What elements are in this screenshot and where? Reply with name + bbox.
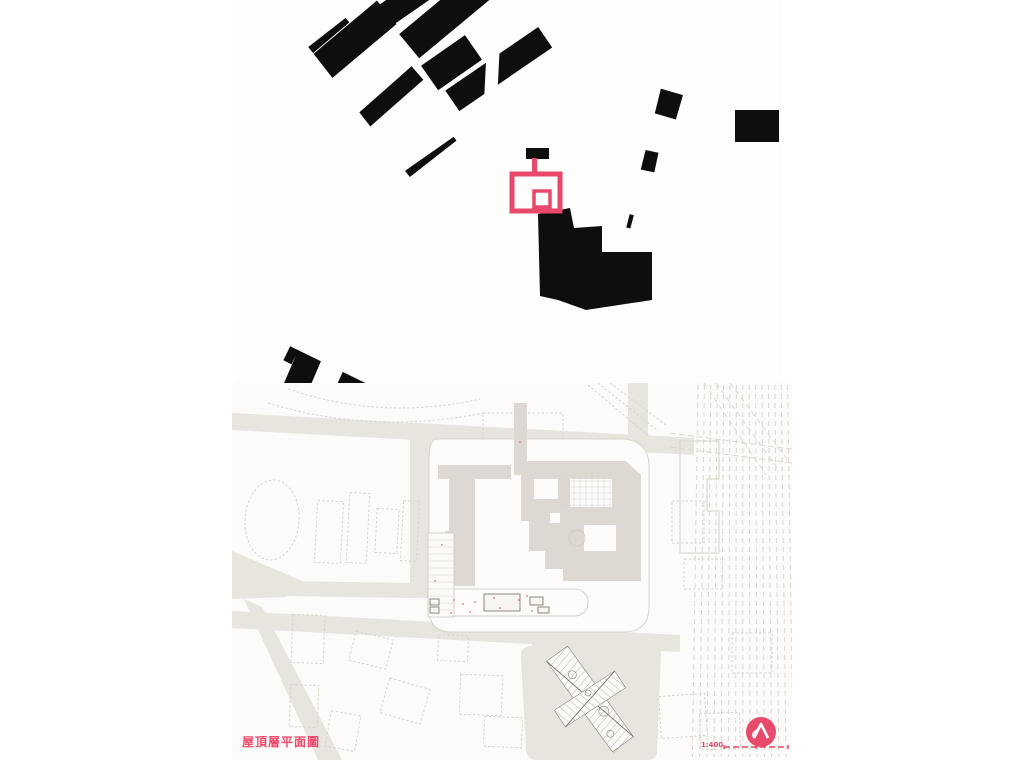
- tree-dot: [469, 611, 471, 613]
- tree-dot: [493, 597, 495, 599]
- street-void: [594, 55, 600, 383]
- tree-dot: [499, 607, 501, 609]
- tree-dot: [441, 544, 443, 546]
- tree-dot: [450, 612, 452, 614]
- presentation-sheet: 屋頂層平面圖 1:400: [0, 0, 1024, 768]
- tree-dot: [453, 599, 455, 601]
- tree-dot: [474, 601, 476, 603]
- tree-dot: [531, 610, 533, 612]
- tree-dot: [434, 580, 436, 582]
- tree-dot: [518, 599, 520, 601]
- tree-dot: [526, 595, 528, 597]
- tree-dot: [462, 603, 464, 605]
- figure-ground-map: [238, 0, 783, 383]
- scale-label: 1:400: [701, 741, 723, 749]
- roof-plan-drawing: [232, 383, 792, 760]
- circle-triangle-logo-icon: [745, 716, 777, 748]
- tree-dot: [519, 441, 521, 443]
- drawing-title: 屋頂層平面圖: [242, 733, 320, 750]
